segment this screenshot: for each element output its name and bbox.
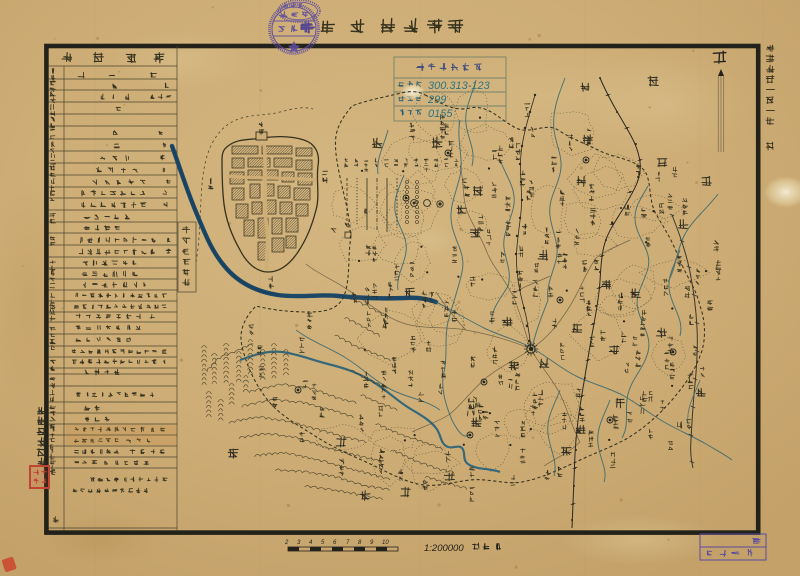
svg-text:2: 2 [284, 540, 289, 546]
svg-text:10: 10 [382, 540, 389, 546]
svg-text:299: 299 [427, 94, 446, 106]
svg-text:1:200000: 1:200000 [424, 543, 464, 554]
svg-text:300.313-123: 300.313-123 [428, 80, 491, 92]
